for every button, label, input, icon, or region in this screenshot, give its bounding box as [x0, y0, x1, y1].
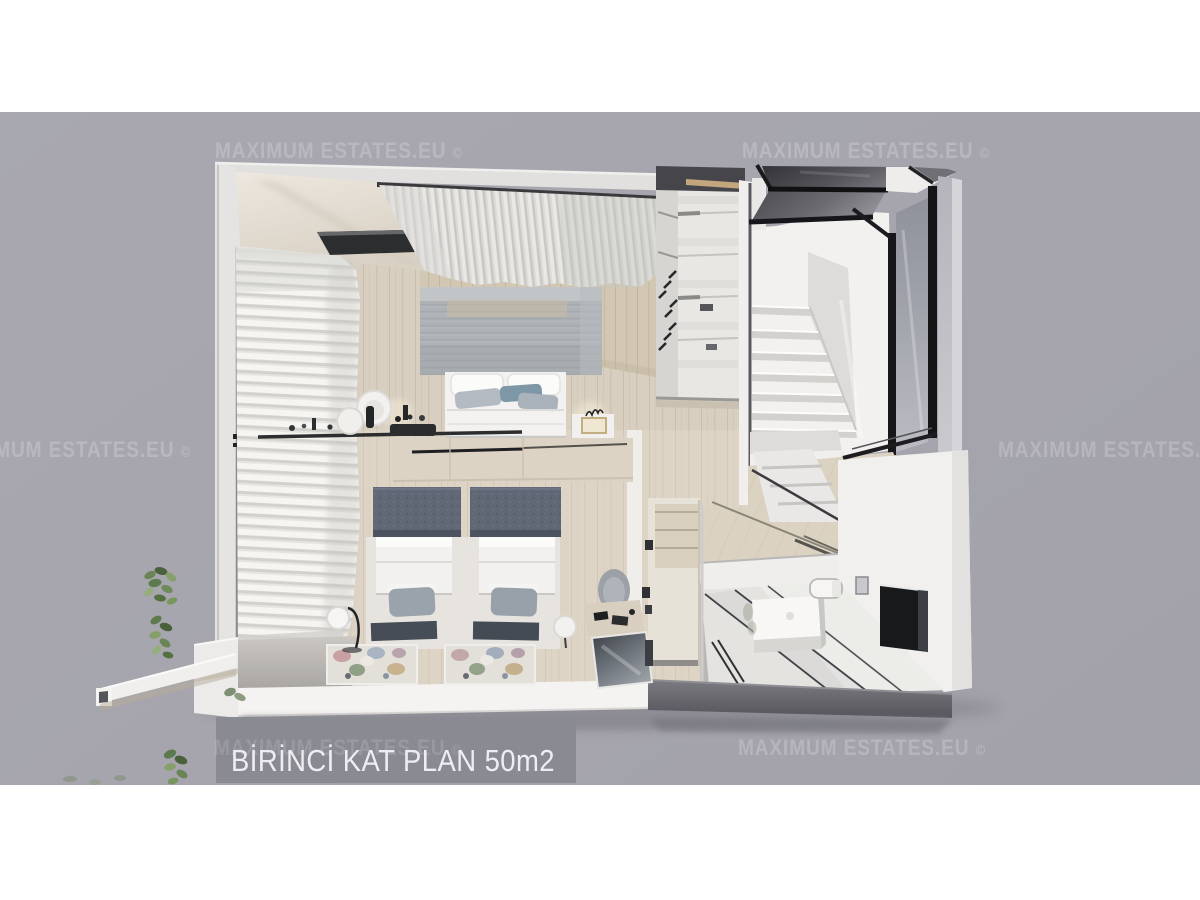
svg-text:MAXIMUM ESTATES.EU ©: MAXIMUM ESTATES.EU ©: [0, 437, 191, 462]
svg-text:MAXIMUM ESTATES.EU ©: MAXIMUM ESTATES.EU ©: [998, 437, 1200, 462]
svg-text:MAXIMUM ESTATES.EU ©: MAXIMUM ESTATES.EU ©: [215, 138, 463, 163]
svg-text:BİRİNCİ KAT PLAN 50m2: BİRİNCİ KAT PLAN 50m2: [231, 743, 555, 778]
svg-text:MAXIMUM ESTATES.EU ©: MAXIMUM ESTATES.EU ©: [738, 735, 986, 760]
svg-text:MAXIMUM ESTATES.EU ©: MAXIMUM ESTATES.EU ©: [742, 138, 990, 163]
